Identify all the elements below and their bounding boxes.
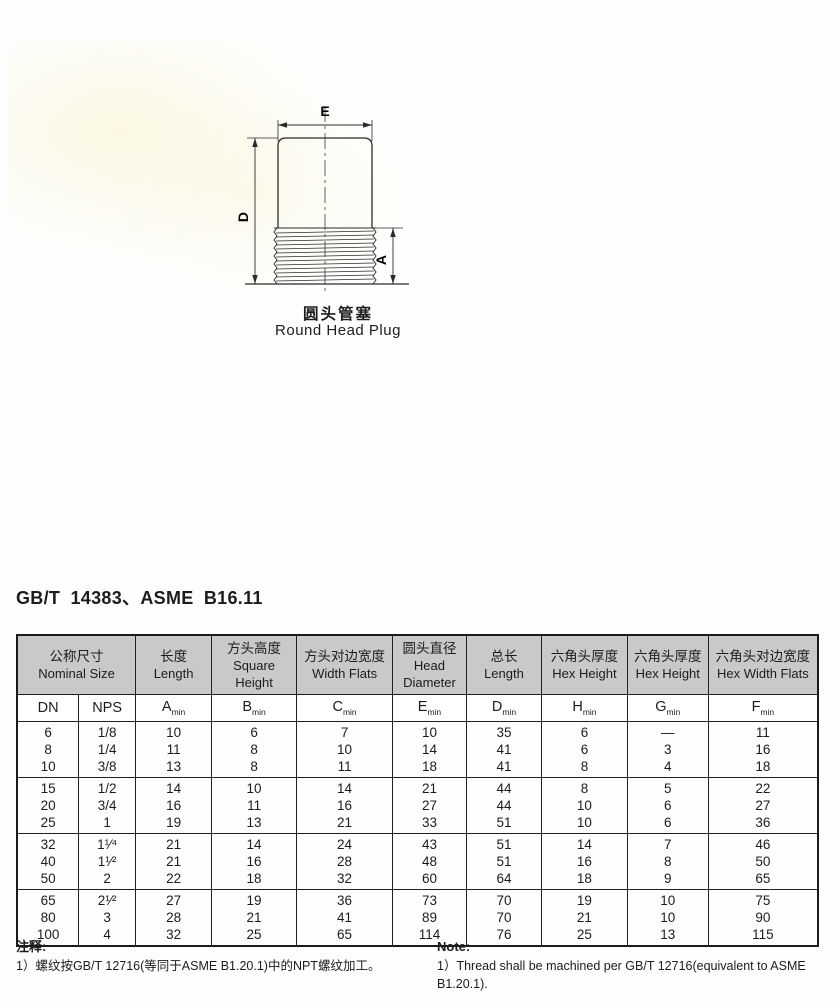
col-header-nominal-size: 公称尺寸 Nominal Size bbox=[17, 635, 136, 695]
table-cell: 8 bbox=[17, 741, 79, 758]
table-cell: 11 bbox=[708, 722, 818, 742]
table-cell: 16 bbox=[708, 741, 818, 758]
col-header-zh: 六角头厚度 bbox=[543, 648, 626, 665]
table-cell: 44 bbox=[466, 778, 541, 798]
table-cell: 41 bbox=[466, 741, 541, 758]
table-cell: 89 bbox=[393, 909, 467, 926]
col-header-head-diameter: 圆头直径 Head Diameter bbox=[393, 635, 467, 695]
table-cell: 21 bbox=[212, 909, 297, 926]
table-row: 502221832606418965 bbox=[17, 870, 818, 890]
table-cell: 10 bbox=[136, 722, 212, 742]
col-header-width-flats: 方头对边宽度 Width Flats bbox=[297, 635, 393, 695]
table-cell: 4 bbox=[627, 758, 708, 778]
catalog-page: E D A 圆头管塞 Round Head Plug GB/T 14383、AS… bbox=[0, 0, 836, 1001]
table-cell: 13 bbox=[212, 814, 297, 834]
table-cell: 16 bbox=[542, 853, 628, 870]
table-cell: 14 bbox=[542, 834, 628, 854]
col-header-zh: 六角头对边宽度 bbox=[710, 648, 816, 665]
dim-label-d: D bbox=[235, 212, 251, 222]
table-cell: 2¹⁄² bbox=[79, 890, 136, 910]
col-header-zh: 方头高度 bbox=[213, 640, 295, 657]
table-cell: 27 bbox=[136, 890, 212, 910]
subheader-c-min: Cmin bbox=[297, 695, 393, 722]
arrow-e-right bbox=[363, 122, 372, 127]
subheader-d-min: Dmin bbox=[466, 695, 541, 722]
figure-caption-en: Round Head Plug bbox=[223, 322, 453, 339]
table-cell: 9 bbox=[627, 870, 708, 890]
note-zh: 注释: 1）螺纹按GB/T 12716(等同于ASME B1.20.1)中的NP… bbox=[16, 938, 426, 975]
table-cell: 16 bbox=[297, 797, 393, 814]
table-cell: 43 bbox=[393, 834, 467, 854]
col-header-en: Hex Height bbox=[629, 665, 707, 682]
thread-left-edge bbox=[274, 228, 277, 284]
col-header-zh: 长度 bbox=[137, 648, 210, 665]
note-en-item: 1）Thread shall be machined per GB/T 1271… bbox=[437, 957, 827, 993]
figure-caption-zh: 圆头管塞 bbox=[223, 302, 453, 324]
table-cell: 27 bbox=[393, 797, 467, 814]
table-cell: 27 bbox=[708, 797, 818, 814]
table-cell: 3/8 bbox=[79, 758, 136, 778]
table-cell: 22 bbox=[136, 870, 212, 890]
subheader-e-min: Emin bbox=[393, 695, 467, 722]
table-cell: 6 bbox=[542, 741, 628, 758]
table-subheader-row: DN NPS Amin Bmin Cmin Emin Dmin Hmin Gmi… bbox=[17, 695, 818, 722]
table-cell: 8 bbox=[212, 741, 297, 758]
table-cell: 19 bbox=[542, 890, 628, 910]
table-cell: 10 bbox=[542, 814, 628, 834]
table-cell: 46 bbox=[708, 834, 818, 854]
table-cell: 15 bbox=[17, 778, 79, 798]
col-header-total-length: 总长 Length bbox=[466, 635, 541, 695]
subheader-g-min: Gmin bbox=[627, 695, 708, 722]
table-cell: 21 bbox=[136, 834, 212, 854]
table-cell: 35 bbox=[466, 722, 541, 742]
table-cell: 21 bbox=[136, 853, 212, 870]
table-cell: 41 bbox=[466, 758, 541, 778]
arrow-a-top bbox=[390, 228, 395, 237]
table-cell: 64 bbox=[466, 870, 541, 890]
table-cell: 8 bbox=[542, 778, 628, 798]
table-cell: 36 bbox=[708, 814, 818, 834]
col-header-length-a: 长度 Length bbox=[136, 635, 212, 695]
table-cell: 20 bbox=[17, 797, 79, 814]
table-cell: 14 bbox=[297, 778, 393, 798]
table-cell: 70 bbox=[466, 909, 541, 926]
col-header-zh: 公称尺寸 bbox=[19, 648, 134, 665]
size-group-3: 321¹⁄⁴211424435114746 401¹⁄²211628485116… bbox=[17, 834, 818, 890]
table-cell: 50 bbox=[17, 870, 79, 890]
arrow-a-bottom bbox=[390, 275, 395, 284]
table-cell: 11 bbox=[297, 758, 393, 778]
table-cell: 40 bbox=[17, 853, 79, 870]
table-cell: 14 bbox=[393, 741, 467, 758]
table-cell: 18 bbox=[212, 870, 297, 890]
table-cell: 48 bbox=[393, 853, 467, 870]
col-header-zh: 圆头直径 bbox=[394, 640, 465, 657]
table-cell: 80 bbox=[17, 909, 79, 926]
col-header-zh: 六角头厚度 bbox=[629, 648, 707, 665]
table-cell: 32 bbox=[297, 870, 393, 890]
table-row: 401¹⁄²211628485116850 bbox=[17, 853, 818, 870]
table-cell: 16 bbox=[212, 853, 297, 870]
table-cell: 73 bbox=[393, 890, 467, 910]
table-cell: 10 bbox=[542, 797, 628, 814]
table-cell: 44 bbox=[466, 797, 541, 814]
col-header-en: Width Flats bbox=[298, 665, 391, 682]
table-cell: 11 bbox=[212, 797, 297, 814]
table-cell: 11 bbox=[136, 741, 212, 758]
note-en: Note: 1）Thread shall be machined per GB/… bbox=[437, 938, 827, 993]
table-row: 251191321335110636 bbox=[17, 814, 818, 834]
table-cell: 19 bbox=[212, 890, 297, 910]
table-cell: 6 bbox=[627, 814, 708, 834]
table-cell: 1¹⁄² bbox=[79, 853, 136, 870]
col-header-en: Length bbox=[137, 665, 210, 682]
col-header-en: Length bbox=[468, 665, 540, 682]
subheader-b-min: Bmin bbox=[212, 695, 297, 722]
col-header-en: Hex Height bbox=[543, 665, 626, 682]
dimension-table: 公称尺寸 Nominal Size 长度 Length 方头高度 Square … bbox=[16, 634, 819, 947]
table-cell: 51 bbox=[466, 853, 541, 870]
table-cell: 19 bbox=[136, 814, 212, 834]
table-cell: 50 bbox=[708, 853, 818, 870]
table-cell: — bbox=[627, 722, 708, 742]
table-cell: 10 bbox=[212, 778, 297, 798]
col-header-en: Square Height bbox=[213, 657, 295, 691]
col-header-en: Nominal Size bbox=[19, 665, 134, 682]
note-zh-title: 注释: bbox=[16, 938, 426, 956]
table-cell: 21 bbox=[297, 814, 393, 834]
table-cell: 18 bbox=[393, 758, 467, 778]
dimension-table-wrap: 公称尺寸 Nominal Size 长度 Length 方头高度 Square … bbox=[16, 634, 819, 947]
table-cell: 1/4 bbox=[79, 741, 136, 758]
arrow-e-left bbox=[278, 122, 287, 127]
subheader-nps: NPS bbox=[79, 695, 136, 722]
table-cell: 10 bbox=[627, 890, 708, 910]
table-cell: 1/2 bbox=[79, 778, 136, 798]
dim-label-a: A bbox=[373, 255, 389, 265]
table-cell: 10 bbox=[17, 758, 79, 778]
table-cell: 41 bbox=[297, 909, 393, 926]
table-cell: 60 bbox=[393, 870, 467, 890]
arrow-d-top bbox=[252, 138, 257, 147]
table-cell: 14 bbox=[212, 834, 297, 854]
col-header-square-height: 方头高度 Square Height bbox=[212, 635, 297, 695]
table-cell: 18 bbox=[708, 758, 818, 778]
table-cell: 33 bbox=[393, 814, 467, 834]
table-cell: 65 bbox=[17, 890, 79, 910]
note-zh-item: 1）螺纹按GB/T 12716(等同于ASME B1.20.1)中的NPT螺纹加… bbox=[16, 957, 426, 975]
table-cell: 5 bbox=[627, 778, 708, 798]
table-cell: 6 bbox=[542, 722, 628, 742]
size-group-2: 151/214101421448522 203/4161116274410627… bbox=[17, 778, 818, 834]
table-cell: 7 bbox=[297, 722, 393, 742]
table-cell: 90 bbox=[708, 909, 818, 926]
table-row: 321¹⁄⁴211424435114746 bbox=[17, 834, 818, 854]
table-row: 61/8106710356—11 bbox=[17, 722, 818, 742]
col-header-hex-height-g: 六角头厚度 Hex Height bbox=[627, 635, 708, 695]
table-row: 652¹⁄²2719367370191075 bbox=[17, 890, 818, 910]
table-cell: 70 bbox=[466, 890, 541, 910]
table-cell: 8 bbox=[212, 758, 297, 778]
table-cell: 1 bbox=[79, 814, 136, 834]
table-cell: 65 bbox=[708, 870, 818, 890]
table-cell: 3 bbox=[79, 909, 136, 926]
col-header-en: Hex Width Flats bbox=[710, 665, 816, 682]
table-cell: 8 bbox=[627, 853, 708, 870]
table-cell: 6 bbox=[17, 722, 79, 742]
table-cell: 24 bbox=[297, 834, 393, 854]
standard-heading: GB/T 14383、ASME B16.11 bbox=[16, 584, 263, 610]
subheader-dn: DN bbox=[17, 695, 79, 722]
table-cell: 28 bbox=[297, 853, 393, 870]
table-cell: 25 bbox=[17, 814, 79, 834]
table-cell: 8 bbox=[542, 758, 628, 778]
table-cell: 1/8 bbox=[79, 722, 136, 742]
table-cell: 1¹⁄⁴ bbox=[79, 834, 136, 854]
table-row: 151/214101421448522 bbox=[17, 778, 818, 798]
table-cell: 32 bbox=[17, 834, 79, 854]
table-cell: 75 bbox=[708, 890, 818, 910]
table-cell: 16 bbox=[136, 797, 212, 814]
table-cell: 3 bbox=[627, 741, 708, 758]
table-row: 8032821418970211090 bbox=[17, 909, 818, 926]
table-cell: 13 bbox=[136, 758, 212, 778]
subheader-a-min: Amin bbox=[136, 695, 212, 722]
table-cell: 10 bbox=[627, 909, 708, 926]
table-cell: 51 bbox=[466, 834, 541, 854]
plug-drawing: E D A bbox=[233, 100, 443, 298]
table-row: 203/4161116274410627 bbox=[17, 797, 818, 814]
table-cell: 14 bbox=[136, 778, 212, 798]
table-cell: 21 bbox=[393, 778, 467, 798]
col-header-zh: 方头对边宽度 bbox=[298, 648, 391, 665]
dim-label-e: E bbox=[320, 103, 329, 119]
table-cell: 3/4 bbox=[79, 797, 136, 814]
size-group-1: 61/8106710356—11 81/41181014416316 103/8… bbox=[17, 722, 818, 778]
table-cell: 18 bbox=[542, 870, 628, 890]
col-header-hex-height-h: 六角头厚度 Hex Height bbox=[542, 635, 628, 695]
table-row: 103/81381118418418 bbox=[17, 758, 818, 778]
table-cell: 6 bbox=[212, 722, 297, 742]
col-header-hex-width-flats: 六角头对边宽度 Hex Width Flats bbox=[708, 635, 818, 695]
table-row: 81/41181014416316 bbox=[17, 741, 818, 758]
subheader-h-min: Hmin bbox=[542, 695, 628, 722]
table-cell: 36 bbox=[297, 890, 393, 910]
col-header-zh: 总长 bbox=[468, 648, 540, 665]
subheader-f-min: Fmin bbox=[708, 695, 818, 722]
table-cell: 28 bbox=[136, 909, 212, 926]
arrow-d-bottom bbox=[252, 275, 257, 284]
table-cell: 51 bbox=[466, 814, 541, 834]
table-cell: 10 bbox=[393, 722, 467, 742]
table-cell: 2 bbox=[79, 870, 136, 890]
table-header-row: 公称尺寸 Nominal Size 长度 Length 方头高度 Square … bbox=[17, 635, 818, 695]
table-cell: 7 bbox=[627, 834, 708, 854]
table-cell: 6 bbox=[627, 797, 708, 814]
col-header-en: Head Diameter bbox=[394, 657, 465, 691]
table-cell: 21 bbox=[542, 909, 628, 926]
table-cell: 22 bbox=[708, 778, 818, 798]
table-cell: 10 bbox=[297, 741, 393, 758]
note-en-title: Note: bbox=[437, 938, 827, 956]
